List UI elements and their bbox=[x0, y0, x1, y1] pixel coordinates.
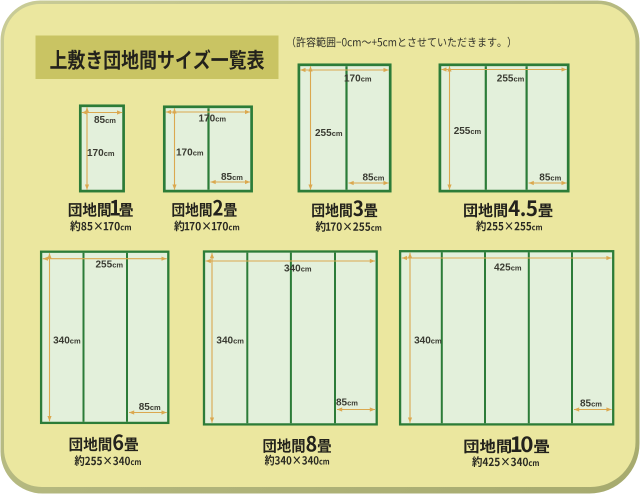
svg-text:85cm: 85cm bbox=[139, 402, 161, 413]
svg-text:255cm: 255cm bbox=[96, 260, 124, 271]
svg-text:85cm: 85cm bbox=[94, 115, 116, 126]
svg-text:85cm: 85cm bbox=[221, 172, 243, 183]
svg-text:255cm: 255cm bbox=[315, 128, 343, 139]
svg-text:170cm: 170cm bbox=[199, 113, 227, 124]
svg-text:340cm: 340cm bbox=[284, 264, 312, 275]
svg-text:340cm: 340cm bbox=[53, 336, 81, 347]
svg-text:170cm: 170cm bbox=[176, 148, 204, 159]
svg-text:85cm: 85cm bbox=[580, 399, 602, 410]
svg-text:255cm: 255cm bbox=[497, 74, 525, 85]
svg-text:85cm: 85cm bbox=[336, 398, 358, 409]
svg-text:85cm: 85cm bbox=[363, 173, 385, 184]
svg-text:340cm: 340cm bbox=[216, 336, 244, 347]
svg-text:255cm: 255cm bbox=[454, 126, 482, 137]
svg-text:425cm: 425cm bbox=[494, 263, 522, 274]
svg-text:170cm: 170cm bbox=[87, 148, 115, 159]
svg-text:85cm: 85cm bbox=[539, 173, 561, 184]
svg-text:170cm: 170cm bbox=[344, 74, 372, 85]
svg-text:340cm: 340cm bbox=[414, 336, 442, 347]
